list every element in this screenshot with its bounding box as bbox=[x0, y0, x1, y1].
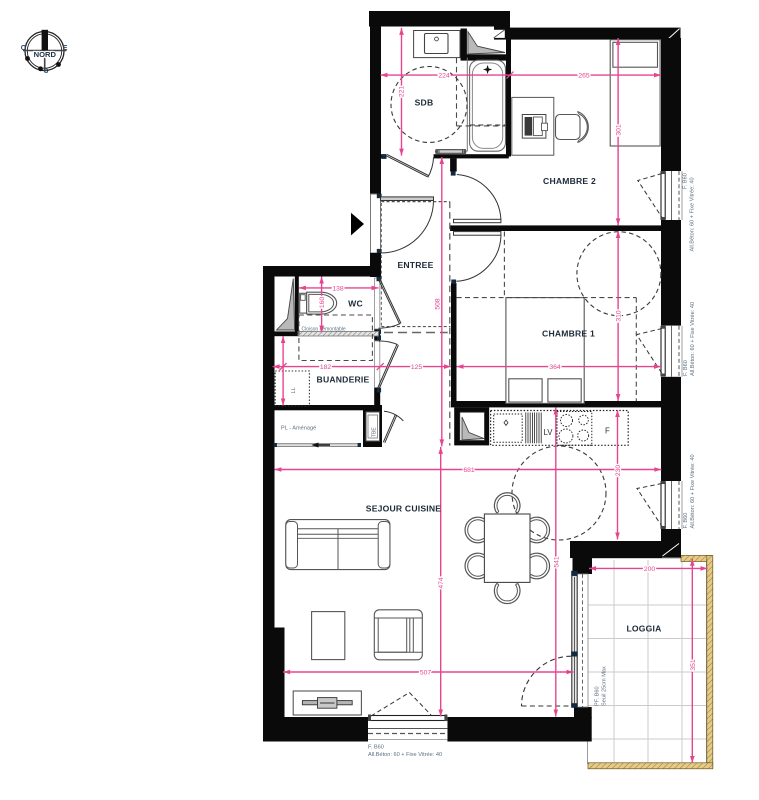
svg-text:CHAMBRE 2: CHAMBRE 2 bbox=[543, 176, 596, 186]
svg-text:F: F bbox=[605, 427, 610, 436]
svg-text:LV: LV bbox=[544, 428, 554, 437]
svg-text:310: 310 bbox=[616, 310, 623, 322]
svg-text:E: E bbox=[63, 45, 68, 52]
svg-text:125: 125 bbox=[411, 364, 423, 371]
svg-text:PL - Aménagé: PL - Aménagé bbox=[281, 426, 316, 432]
svg-text:230: 230 bbox=[615, 465, 622, 477]
svg-text:O: O bbox=[21, 45, 27, 52]
svg-text:PF. B60: PF. B60 bbox=[595, 686, 601, 706]
svg-text:Cloison démontable: Cloison démontable bbox=[302, 327, 346, 333]
svg-text:Seuil 25cm Max: Seuil 25cm Max bbox=[602, 666, 608, 706]
svg-text:160: 160 bbox=[319, 297, 326, 309]
svg-text:182: 182 bbox=[320, 364, 332, 371]
svg-text:LL: LL bbox=[291, 387, 297, 393]
svg-text:F. B60: F. B60 bbox=[683, 173, 689, 189]
svg-text:All.Béton: 60 + Fixe Vitrée: 4: All.Béton: 60 + Fixe Vitrée: 40 bbox=[690, 177, 696, 251]
svg-text:F. B60: F. B60 bbox=[683, 513, 689, 529]
svg-text:474: 474 bbox=[438, 577, 445, 589]
svg-text:364: 364 bbox=[549, 364, 561, 371]
svg-text:681: 681 bbox=[463, 467, 475, 474]
svg-text:541: 541 bbox=[553, 556, 560, 568]
svg-text:TBE: TBE bbox=[372, 427, 378, 437]
svg-text:301: 301 bbox=[616, 124, 623, 136]
svg-text:265: 265 bbox=[578, 73, 590, 80]
svg-text:F. B60: F. B60 bbox=[683, 360, 689, 376]
svg-text:BUANDERIE: BUANDERIE bbox=[317, 375, 370, 385]
svg-text:508: 508 bbox=[434, 298, 441, 310]
svg-text:200: 200 bbox=[644, 566, 656, 573]
svg-text:S: S bbox=[44, 68, 49, 75]
svg-text:All.Béton: 60 + Fixe Vitrée: 4: All.Béton: 60 + Fixe Vitrée: 40 bbox=[690, 302, 696, 376]
svg-text:SEJOUR CUISINE: SEJOUR CUISINE bbox=[366, 504, 441, 514]
svg-text:All.Béton: 60 + Fixe Vitrée: 4: All.Béton: 60 + Fixe Vitrée: 40 bbox=[690, 454, 696, 528]
svg-text:LOGGIA: LOGGIA bbox=[626, 624, 661, 634]
svg-text:507: 507 bbox=[420, 670, 432, 677]
svg-text:NORD: NORD bbox=[34, 50, 57, 59]
svg-text:224: 224 bbox=[438, 73, 450, 80]
svg-text:CHAMBRE 1: CHAMBRE 1 bbox=[542, 329, 595, 339]
svg-text:F. B60: F. B60 bbox=[368, 745, 384, 751]
svg-text:351: 351 bbox=[690, 659, 697, 671]
svg-text:SDB: SDB bbox=[415, 98, 434, 108]
svg-text:221: 221 bbox=[399, 86, 406, 98]
svg-text:ENTREE: ENTREE bbox=[397, 260, 433, 270]
svg-text:All.Béton: 60 + Fixe Vitrée: 4: All.Béton: 60 + Fixe Vitrée: 40 bbox=[368, 752, 442, 758]
svg-text:138: 138 bbox=[332, 285, 344, 292]
svg-text:WC: WC bbox=[348, 299, 363, 309]
